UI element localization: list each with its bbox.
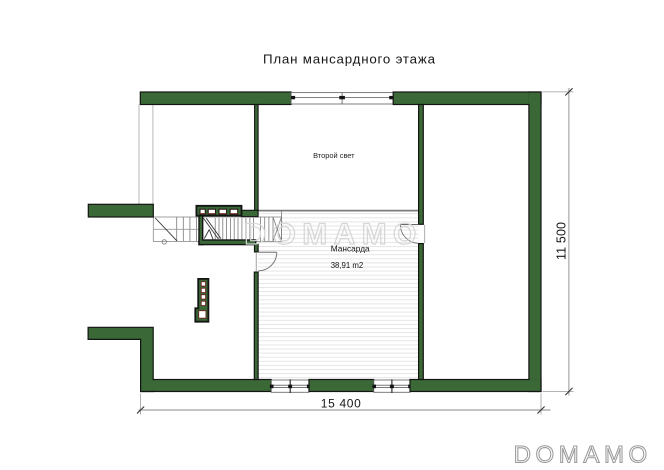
svg-text:38,91 m2: 38,91 m2: [331, 260, 364, 270]
svg-text:15 400: 15 400: [321, 397, 361, 411]
svg-text:Второй свет: Второй свет: [313, 151, 355, 160]
svg-text:План мансардного этажа: План мансардного этажа: [263, 52, 436, 67]
svg-text:11 500: 11 500: [554, 222, 568, 260]
